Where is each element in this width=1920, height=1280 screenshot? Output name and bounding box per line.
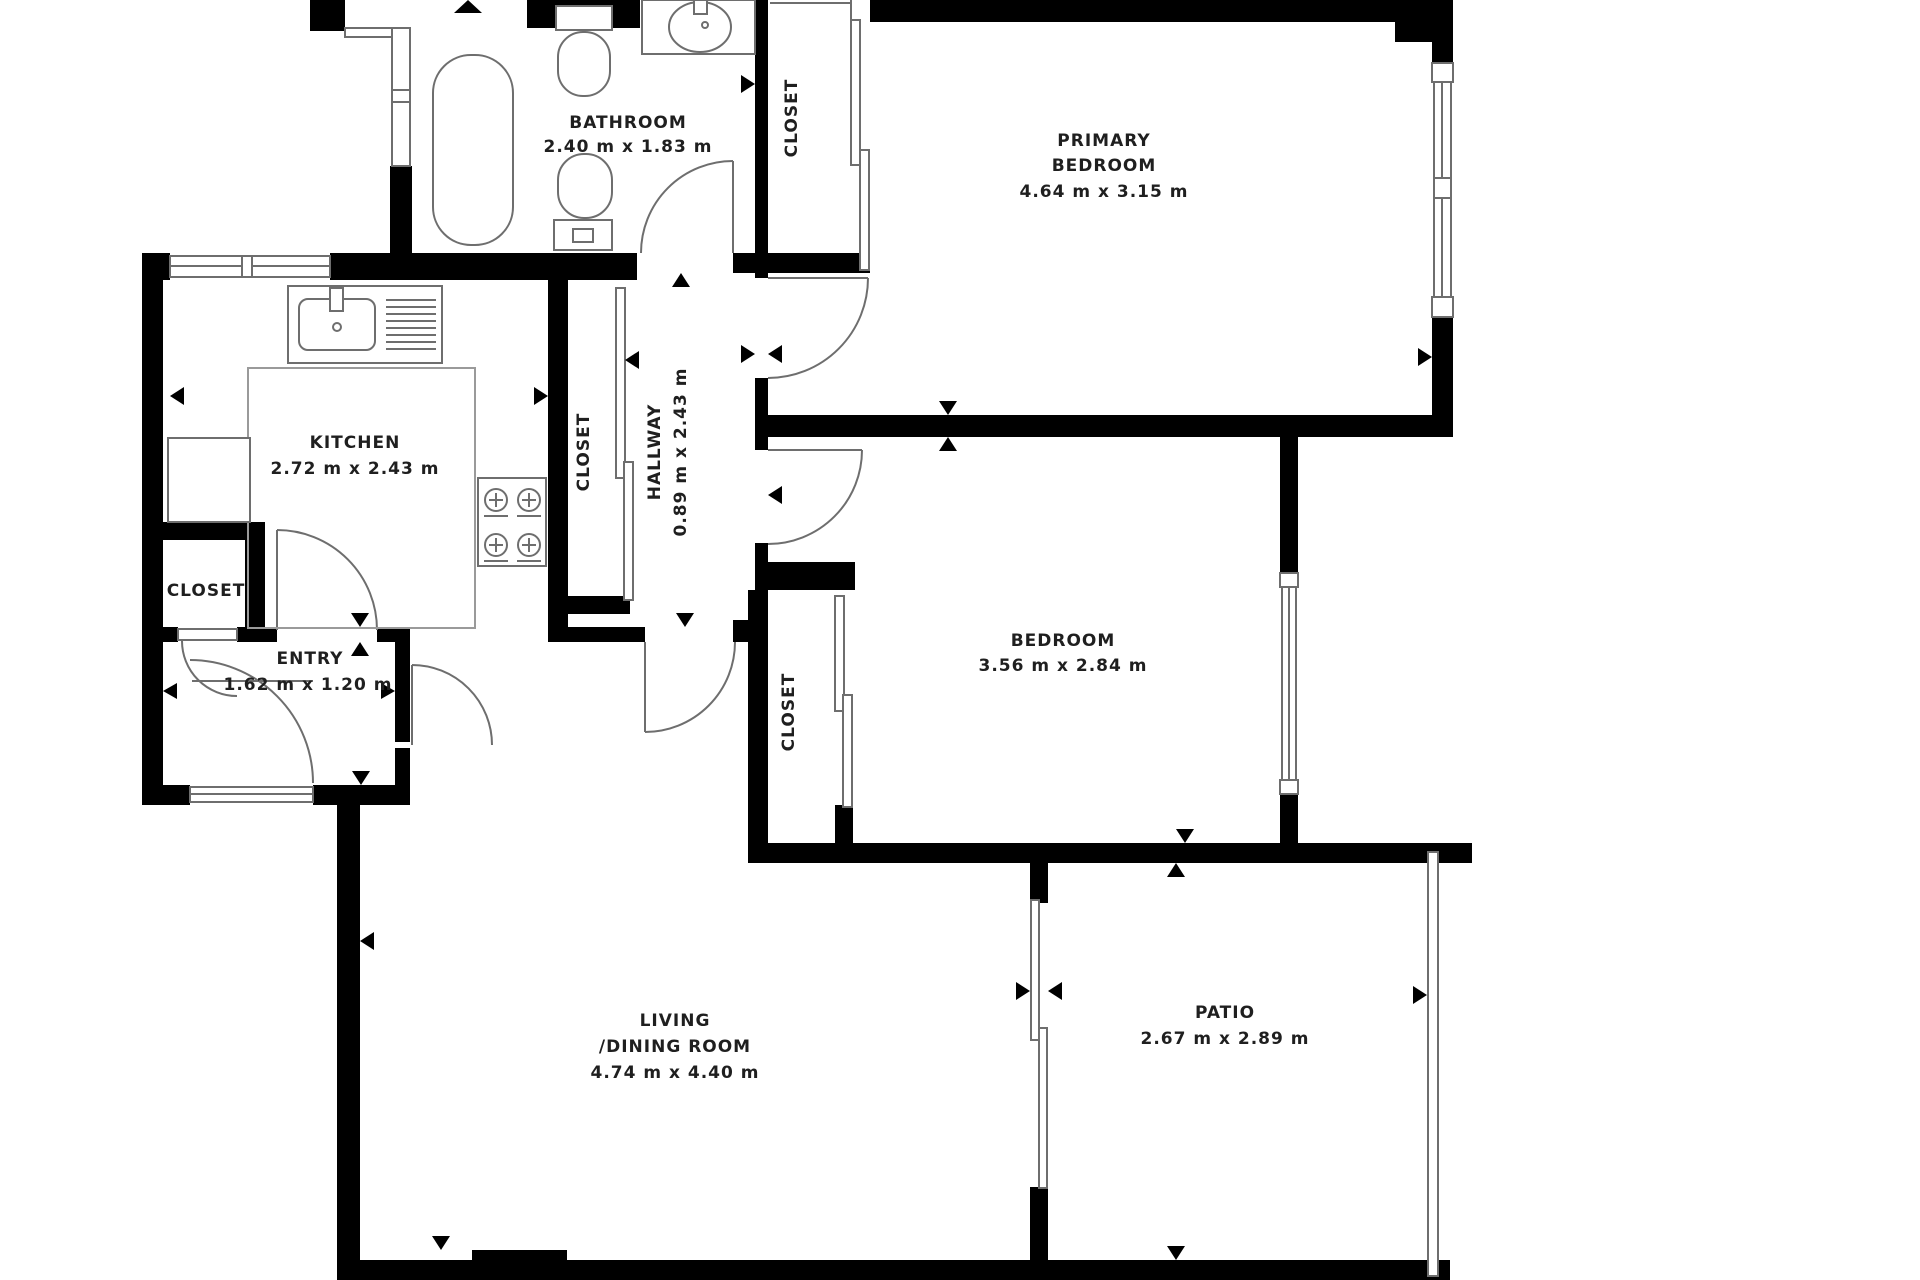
label-kitchen: KITCHEN — [310, 433, 401, 453]
window-bedroom-right — [1280, 573, 1298, 794]
arrow-right-icon — [1016, 982, 1030, 1000]
label-bathroom: BATHROOM — [569, 113, 687, 133]
label-kitchen-dims: 2.72 m x 2.43 m — [271, 459, 440, 479]
label-hallway: HALLWAY — [645, 404, 665, 501]
arrow-right-icon — [1413, 986, 1427, 1004]
sliding-door-top-closet — [851, 0, 869, 270]
label-bathroom-dims: 2.40 m x 1.83 m — [544, 137, 713, 157]
arrow-up-icon — [351, 642, 369, 656]
arrow-down-icon — [351, 613, 369, 627]
label-bedroom: BEDROOM — [1011, 631, 1116, 651]
arrow-down-icon — [676, 613, 694, 627]
bathtub — [433, 55, 513, 245]
toilet-lower — [554, 154, 612, 250]
arrow-left-icon — [360, 932, 374, 950]
toilet-upper — [556, 6, 612, 96]
arrow-up-icon — [454, 0, 482, 13]
bathroom-sink — [642, 0, 755, 54]
window-kitchen-top — [170, 256, 330, 277]
arrow-down-icon — [939, 401, 957, 415]
arrow-left-icon — [1048, 982, 1062, 1000]
label-entry-dims: 1.62 m x 1.20 m — [224, 675, 393, 695]
label-closet-hall: CLOSET — [574, 413, 594, 492]
door-entry-living — [412, 665, 492, 745]
kitchen-floor-outline — [248, 368, 475, 628]
arrow-down-icon — [352, 771, 370, 785]
door-hallway-living — [645, 642, 735, 732]
arrow-left-icon — [170, 387, 184, 405]
fixtures — [168, 0, 851, 628]
label-living-dims: 4.74 m x 4.40 m — [591, 1063, 760, 1083]
kitchen-sink-counter — [288, 286, 442, 363]
arrow-up-icon — [939, 437, 957, 451]
label-entry: ENTRY — [277, 649, 344, 669]
floor-plan: BATHROOM 2.40 m x 1.83 m CLOSET PRIMARY … — [0, 0, 1920, 1280]
arrow-left-icon — [625, 351, 639, 369]
walls — [142, 0, 1472, 1280]
arrow-up-icon — [672, 273, 690, 287]
sliding-door-bedroom-closet — [835, 596, 852, 807]
label-living-2: /DINING ROOM — [599, 1037, 751, 1057]
stove — [478, 478, 546, 566]
arrow-right-icon — [741, 75, 755, 93]
label-patio: PATIO — [1195, 1003, 1255, 1023]
label-closet-bedroom: CLOSET — [779, 673, 799, 752]
label-primary-bedroom-1: PRIMARY — [1057, 131, 1150, 151]
arrow-right-icon — [741, 345, 755, 363]
arrow-right-icon — [1418, 348, 1432, 366]
arrow-down-icon — [1167, 1246, 1185, 1260]
window-primary-bedroom-right — [1432, 63, 1453, 317]
refrigerator — [168, 438, 250, 522]
label-closet-entry: CLOSET — [167, 581, 246, 601]
arrow-down-icon — [1176, 829, 1194, 843]
patio-open-edge — [1428, 852, 1438, 1276]
label-hallway-dims: 0.89 m x 2.43 m — [671, 368, 691, 537]
door-bathroom — [641, 161, 733, 253]
label-primary-bedroom-dims: 4.64 m x 3.15 m — [1020, 182, 1189, 202]
sliding-door-patio — [1031, 900, 1047, 1188]
arrow-left-icon — [163, 683, 177, 699]
label-primary-bedroom-2: BEDROOM — [1052, 156, 1157, 176]
arrow-left-icon — [768, 345, 782, 363]
window-bathroom-left — [345, 28, 410, 166]
door-primary-bedroom — [768, 278, 868, 378]
arrow-right-icon — [534, 387, 548, 405]
door-bedroom — [768, 450, 862, 544]
arrow-up-icon — [1167, 863, 1185, 877]
floor-plan-drawing: BATHROOM 2.40 m x 1.83 m CLOSET PRIMARY … — [0, 0, 1920, 1280]
sliding-door-hall-closet — [616, 288, 633, 600]
arrow-left-icon — [768, 486, 782, 504]
label-patio-dims: 2.67 m x 2.89 m — [1141, 1029, 1310, 1049]
label-bedroom-dims: 3.56 m x 2.84 m — [979, 656, 1148, 676]
arrow-down-icon — [432, 1236, 450, 1250]
label-closet-top: CLOSET — [782, 79, 802, 158]
label-living-1: LIVING — [640, 1011, 711, 1031]
